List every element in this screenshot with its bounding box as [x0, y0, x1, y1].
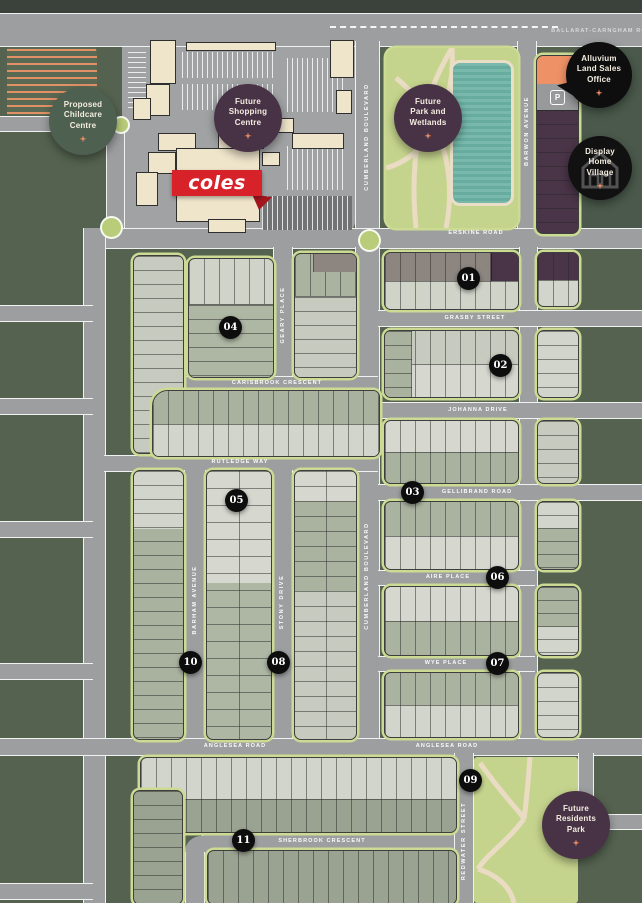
street-label: ERSKINE ROAD [448, 230, 503, 236]
building [150, 40, 176, 84]
parking-icon: P [550, 90, 565, 105]
poi-alluvium-land-sales-office[interactable]: Alluvium Land Sales Office [566, 42, 632, 108]
lot-block-east-5 [537, 586, 579, 656]
stage-badge-03[interactable]: 03 [401, 481, 424, 504]
lot-block-anglesea-south [140, 757, 457, 833]
street-label: CARISBROOK CRESCENT [232, 380, 322, 386]
road-stub-west-5 [0, 663, 93, 680]
stage-badge-04[interactable]: 04 [219, 316, 242, 339]
building [262, 152, 280, 166]
poi-future-shopping-centre[interactable]: Future Shopping Centre [214, 84, 282, 152]
lot-block-east-2 [537, 330, 579, 398]
lot-block-sherbrook-south [207, 850, 457, 903]
lot-block-wye-south [384, 672, 519, 738]
lot-block-geary-east [294, 253, 357, 378]
stage-badge-02[interactable]: 02 [489, 354, 512, 377]
building [133, 98, 151, 120]
sparkle-icon [596, 89, 603, 96]
lot-block-sherbrook-west [133, 790, 183, 903]
poi-future-park-and-wetlands[interactable]: Future Park and Wetlands [394, 84, 462, 152]
lot-block-aire-south [384, 586, 519, 656]
lot-block-gellibrand-south [384, 501, 519, 570]
stage-badge-11[interactable]: 11 [232, 829, 255, 852]
road-anglesea [0, 738, 642, 756]
lot-block-east-4 [537, 501, 579, 570]
lot-block-carisbrook-south [152, 390, 380, 457]
poi-proposed-childcare-centre[interactable]: Proposed Childcare Centre [49, 87, 117, 155]
lot-block-stony-east [294, 470, 357, 740]
parking-row-1 [182, 52, 274, 78]
building [330, 40, 354, 78]
poi-label: Future Park and Wetlands [409, 97, 446, 129]
coles-label: coles [188, 172, 246, 194]
masterplan-map: P [0, 0, 642, 903]
parking-row-4 [287, 146, 345, 190]
building [292, 133, 344, 149]
stage-badge-07[interactable]: 07 [486, 652, 509, 675]
street-label: STONY DRIVE [279, 575, 285, 630]
street-label: BARWON AVENUE [524, 96, 530, 166]
building [136, 172, 158, 206]
poi-future-residents-park[interactable]: Future Residents Park [542, 791, 610, 859]
coles-logo[interactable]: coles [172, 170, 262, 196]
lot-block-johanna-south [384, 420, 519, 484]
street-label: CUMBERLAND BOULEVARD [364, 522, 370, 629]
road-west-main [83, 228, 106, 903]
poi-label: Proposed Childcare Centre [64, 100, 103, 132]
wetland [450, 60, 514, 206]
stage-badge-05[interactable]: 05 [225, 489, 248, 512]
street-label: CUMBERLAND BOULEVARD [364, 83, 370, 190]
lot-block-east-1 [537, 252, 579, 307]
road-stub-west-4 [0, 521, 93, 538]
poi-label: Display Home Village [585, 147, 615, 179]
sparkle-icon [80, 135, 87, 142]
parking-letter: P [555, 93, 560, 102]
stage-badge-08[interactable]: 08 [267, 651, 290, 674]
lot-block-east-3 [537, 420, 579, 484]
road-grasby [378, 310, 642, 327]
street-label: BALLARAT-CARNGHAM ROAD [551, 28, 642, 34]
road-sherbrook-south [185, 852, 205, 903]
street-label: GRASBY STREET [445, 315, 506, 321]
road-stub-west-3 [0, 398, 93, 415]
street-label: JOHANNA DRIVE [448, 407, 508, 413]
road-ballarat-carngham [0, 13, 642, 47]
lot-block-01 [384, 252, 519, 310]
roundabout-erskine-cumberland [358, 229, 381, 252]
sparkle-icon [245, 132, 252, 139]
road-stub-west-2 [0, 305, 93, 322]
street-label: BARHAM AVENUE [192, 565, 198, 634]
building [186, 42, 276, 51]
lot-block-east-6 [537, 672, 579, 738]
street-label: SHERBROOK CRESCENT [278, 838, 365, 844]
street-label: RUTLEDGE WAY [211, 459, 268, 465]
road-cumberland-south [355, 247, 380, 738]
lot-block-barham-west [133, 470, 184, 740]
road-stub-west-6 [0, 883, 93, 900]
poi-label: Future Residents Park [556, 804, 596, 836]
stage-badge-10[interactable]: 10 [179, 651, 202, 674]
stage-badge-06[interactable]: 06 [486, 566, 509, 589]
poi-display-home-village[interactable]: Display Home Village [568, 136, 632, 200]
building [208, 219, 246, 233]
building [336, 90, 352, 114]
stage-badge-09[interactable]: 09 [459, 769, 482, 792]
street-label: AIRE PLACE [426, 574, 470, 580]
poi-label: Future Shopping Centre [229, 97, 267, 129]
sparkle-icon [425, 132, 432, 139]
sparkle-icon [573, 839, 580, 846]
road-centerline [330, 26, 558, 28]
road-johanna [378, 402, 642, 419]
poi-label: Alluvium Land Sales Office [577, 54, 621, 86]
roundabout-erskine-west [100, 216, 123, 239]
street-label: WYE PLACE [425, 660, 468, 666]
outer-strip-top [0, 0, 642, 14]
street-label: GELLIBRAND ROAD [442, 489, 512, 495]
street-label: REDWATER STREET [461, 802, 467, 880]
parking-row-dark [262, 196, 352, 230]
street-label: ANGLESEA ROAD [416, 743, 478, 749]
street-label: ANGLESEA ROAD [204, 743, 266, 749]
stage-badge-01[interactable]: 01 [457, 267, 480, 290]
street-label: GEARY PLACE [280, 286, 286, 343]
